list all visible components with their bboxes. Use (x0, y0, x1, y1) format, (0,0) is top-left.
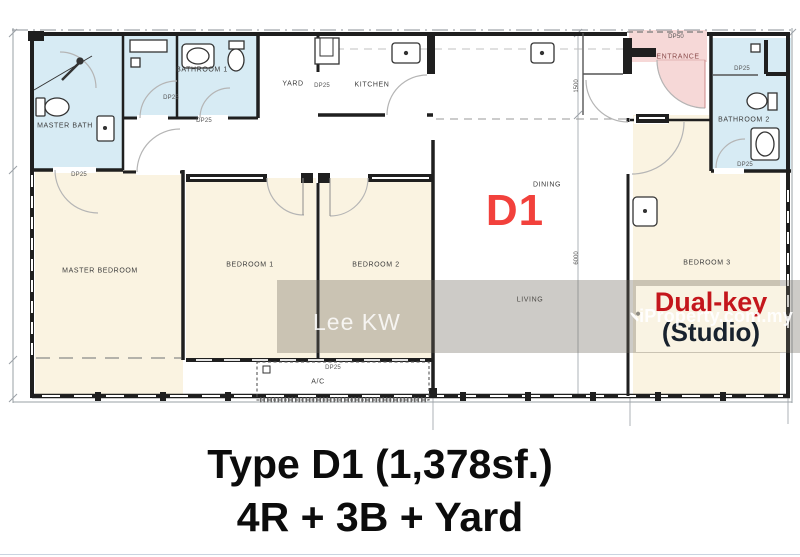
fixture-icon (131, 58, 140, 67)
label-bathroom-2: BATHROOM 2 (718, 117, 770, 124)
dim-dp25: DP25 (314, 83, 330, 89)
floor-plan-page: MASTER BATH BATHROOM 1 YARD KITCHEN ENTR… (0, 0, 800, 557)
label-bathroom-1: BATHROOM 1 (176, 67, 228, 74)
dim-dp25: DP25 (737, 162, 753, 168)
caption-type-size: Type D1 (1,378sf.) (207, 441, 553, 488)
dim-dp50: DP50 (668, 34, 684, 40)
dim-dp25: DP25 (734, 66, 750, 72)
label-kitchen: KITCHEN (355, 82, 390, 89)
dim-dp25: DP25 (163, 95, 179, 101)
dim-living-depth: 6000 (574, 251, 580, 264)
toilet-icon (36, 98, 45, 116)
dim-entry-depth: 1500 (574, 79, 580, 92)
dim-dp25: DP25 (196, 118, 212, 124)
caption-config: 4R + 3B + Yard (237, 494, 523, 541)
dim-dp25: DP25 (71, 172, 87, 178)
bottom-divider (0, 554, 800, 555)
toilet-icon (747, 93, 767, 109)
counter-icon (130, 40, 167, 52)
label-master-bath: MASTER BATH (37, 123, 93, 130)
dim-dp25: DP25 (325, 365, 341, 371)
unit-code: D1 (486, 186, 544, 236)
room-master-bedroom (35, 170, 183, 396)
label-ac-ledge: A/C (311, 379, 324, 386)
cistern-icon (751, 44, 760, 52)
brand-watermark: iProperty.com.my (633, 306, 793, 327)
label-bedroom-2: BEDROOM 2 (352, 262, 399, 269)
toilet-icon (229, 41, 244, 49)
label-bedroom-3: BEDROOM 3 (683, 260, 730, 267)
entrance-door-swing-area (657, 60, 705, 108)
label-entrance: ENTRANCE (656, 54, 699, 61)
floor-plan-drawing (0, 0, 800, 435)
agent-watermark: Lee KW (313, 309, 401, 336)
label-master-bedroom: MASTER BEDROOM (62, 268, 138, 275)
label-yard: YARD (282, 81, 303, 88)
label-bedroom-1: BEDROOM 1 (226, 262, 273, 269)
toilet-icon (45, 98, 69, 116)
shower-head-icon (77, 58, 83, 64)
brand-watermark-text: iProperty.com.my (639, 306, 793, 327)
